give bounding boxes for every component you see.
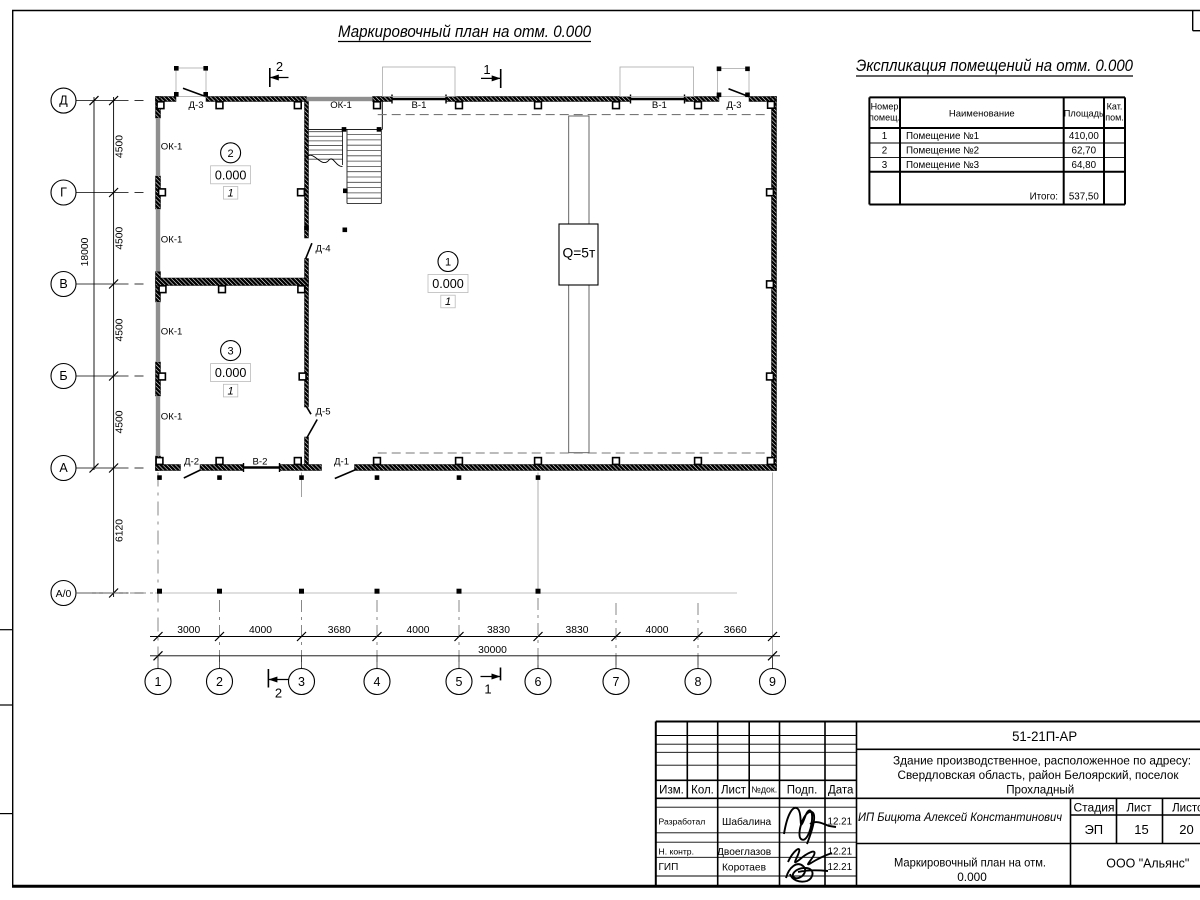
svg-text:62,70: 62,70 [1072, 146, 1097, 157]
svg-text:ОК-1: ОК-1 [161, 142, 183, 153]
svg-text:Г: Г [60, 186, 67, 200]
svg-text:Д-2: Д-2 [184, 457, 199, 468]
svg-text:пом.: пом. [1105, 113, 1124, 123]
svg-text:6120: 6120 [115, 519, 126, 542]
svg-text:1: 1 [483, 62, 490, 77]
svg-text:5: 5 [456, 675, 463, 689]
svg-text:В-1: В-1 [412, 100, 427, 111]
svg-text:Двоеглазов: Двоеглазов [717, 847, 771, 858]
svg-text:Б: Б [59, 369, 67, 383]
svg-text:4000: 4000 [407, 625, 430, 636]
svg-text:3680: 3680 [328, 625, 351, 636]
svg-text:Прохладный: Прохладный [1006, 782, 1074, 796]
svg-text:0.000: 0.000 [215, 168, 247, 182]
svg-text:8: 8 [695, 675, 702, 689]
svg-text:15: 15 [1134, 822, 1148, 837]
svg-text:В-1: В-1 [652, 100, 667, 111]
svg-text:Изм.: Изм. [659, 785, 684, 797]
svg-text:Шабалина: Шабалина [722, 816, 772, 828]
svg-text:ИП Бицюта Алексей Константинов: ИП Бицюта Алексей Константинович [858, 810, 1062, 824]
svg-text:Коротаев: Коротаев [722, 863, 766, 874]
svg-text:Подп.: Подп. [787, 785, 818, 797]
svg-text:№док.: №док. [751, 785, 777, 795]
svg-text:1: 1 [228, 188, 234, 200]
svg-text:Д: Д [59, 94, 68, 108]
svg-text:3830: 3830 [566, 625, 589, 636]
svg-text:6: 6 [535, 675, 542, 689]
svg-text:2: 2 [882, 146, 887, 157]
svg-text:Лист: Лист [1127, 803, 1153, 815]
svg-text:Маркировочный план на отм. 0.0: Маркировочный план на отм. 0.000 [338, 23, 591, 41]
svg-text:ОК-1: ОК-1 [330, 100, 352, 111]
svg-text:Здание производственное, распо: Здание производственное, расположенное п… [893, 754, 1191, 768]
svg-text:ООО "Альянс": ООО "Альянс" [1106, 856, 1189, 871]
svg-text:1: 1 [484, 682, 491, 697]
svg-text:ОК-1: ОК-1 [161, 327, 183, 338]
svg-text:2: 2 [275, 686, 282, 701]
svg-text:4500: 4500 [115, 318, 126, 341]
svg-text:А/0: А/0 [56, 588, 72, 600]
svg-text:Разработал: Разработал [659, 817, 706, 827]
svg-text:0.000: 0.000 [215, 366, 247, 380]
svg-text:64,80: 64,80 [1072, 160, 1097, 171]
svg-text:Дата: Дата [828, 785, 854, 797]
svg-text:Наименование: Наименование [949, 109, 1015, 120]
svg-text:0.000: 0.000 [432, 277, 464, 291]
svg-text:2: 2 [276, 59, 283, 74]
svg-text:1: 1 [228, 385, 234, 397]
svg-text:Кол.: Кол. [691, 785, 714, 797]
svg-text:2: 2 [216, 675, 223, 689]
svg-text:Д-1: Д-1 [334, 457, 349, 468]
svg-text:Д-4: Д-4 [316, 244, 332, 255]
svg-text:4500: 4500 [115, 410, 126, 433]
svg-text:А: А [59, 461, 68, 475]
svg-text:ОК-1: ОК-1 [161, 235, 183, 246]
svg-text:12.21: 12.21 [828, 847, 853, 858]
svg-text:ЭП: ЭП [1084, 822, 1103, 837]
svg-text:В: В [59, 277, 67, 291]
svg-text:1: 1 [445, 296, 451, 308]
svg-text:3: 3 [228, 346, 234, 358]
svg-text:Свердловская область, район Бе: Свердловская область, район Белоярский, … [898, 768, 1180, 782]
svg-text:Д-5: Д-5 [316, 407, 331, 418]
svg-text:410,00: 410,00 [1069, 131, 1100, 142]
svg-text:3830: 3830 [487, 625, 510, 636]
svg-text:4500: 4500 [115, 135, 126, 158]
svg-text:3660: 3660 [724, 625, 747, 636]
svg-text:Д-3: Д-3 [189, 100, 204, 111]
svg-text:В-2: В-2 [253, 457, 268, 468]
svg-text:Помещение №2: Помещение №2 [906, 146, 979, 157]
svg-text:Итого:: Итого: [1030, 191, 1058, 202]
svg-text:9: 9 [769, 675, 776, 689]
svg-text:30000: 30000 [478, 645, 507, 656]
svg-text:ОК-1: ОК-1 [161, 412, 183, 423]
svg-text:Н. контр.: Н. контр. [659, 847, 694, 857]
svg-text:4000: 4000 [249, 625, 272, 636]
svg-text:Лист: Лист [721, 785, 747, 797]
svg-text:Помещение №3: Помещение №3 [906, 160, 980, 171]
svg-text:0.000: 0.000 [957, 870, 987, 884]
svg-text:4: 4 [374, 675, 381, 689]
svg-text:1: 1 [882, 131, 887, 142]
svg-text:18000: 18000 [80, 237, 91, 266]
svg-text:Помещение №1: Помещение №1 [906, 131, 979, 142]
svg-text:Площадь: Площадь [1064, 109, 1104, 119]
svg-text:12.21: 12.21 [828, 862, 853, 873]
svg-text:Стадия: Стадия [1074, 803, 1115, 815]
svg-text:Q=5т: Q=5т [563, 246, 596, 261]
svg-text:ГИП: ГИП [659, 862, 679, 873]
svg-text:помещ.: помещ. [869, 113, 900, 123]
svg-text:537,50: 537,50 [1069, 191, 1100, 202]
svg-text:3000: 3000 [177, 625, 200, 636]
svg-text:3: 3 [298, 675, 305, 689]
svg-text:3: 3 [882, 160, 888, 171]
svg-text:Кат.: Кат. [1107, 102, 1123, 112]
svg-text:4500: 4500 [115, 226, 126, 249]
svg-text:51-21П-АР: 51-21П-АР [1012, 729, 1077, 744]
svg-text:Листов: Листов [1172, 803, 1200, 815]
svg-text:4000: 4000 [646, 625, 669, 636]
svg-text:Д-3: Д-3 [726, 100, 741, 111]
svg-text:20: 20 [1179, 822, 1193, 837]
svg-text:2: 2 [228, 148, 234, 160]
svg-text:Номер: Номер [871, 102, 899, 112]
svg-text:1: 1 [445, 257, 451, 269]
svg-text:Маркировочный план на отм.: Маркировочный план на отм. [894, 856, 1046, 870]
svg-text:7: 7 [613, 675, 620, 689]
svg-text:Экспликация помещений на отм.: Экспликация помещений на отм. 0.000 [856, 56, 1133, 75]
svg-text:1: 1 [155, 675, 162, 689]
